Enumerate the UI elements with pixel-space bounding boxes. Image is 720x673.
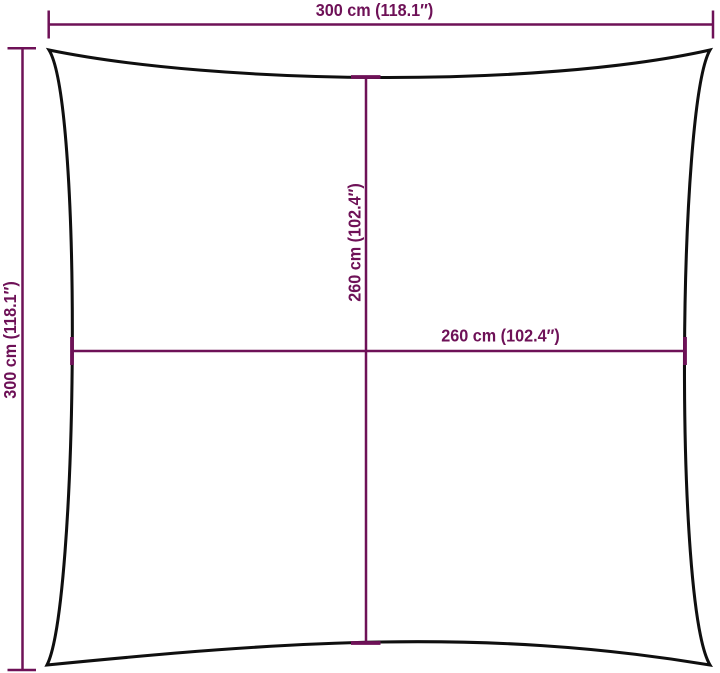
svg-text:300 cm (118.1″): 300 cm (118.1″) [316, 0, 434, 20]
svg-text:300 cm (118.1″): 300 cm (118.1″) [0, 281, 20, 399]
svg-text:260 cm (102.4″): 260 cm (102.4″) [345, 183, 365, 301]
svg-text:260 cm (102.4″): 260 cm (102.4″) [441, 326, 559, 346]
